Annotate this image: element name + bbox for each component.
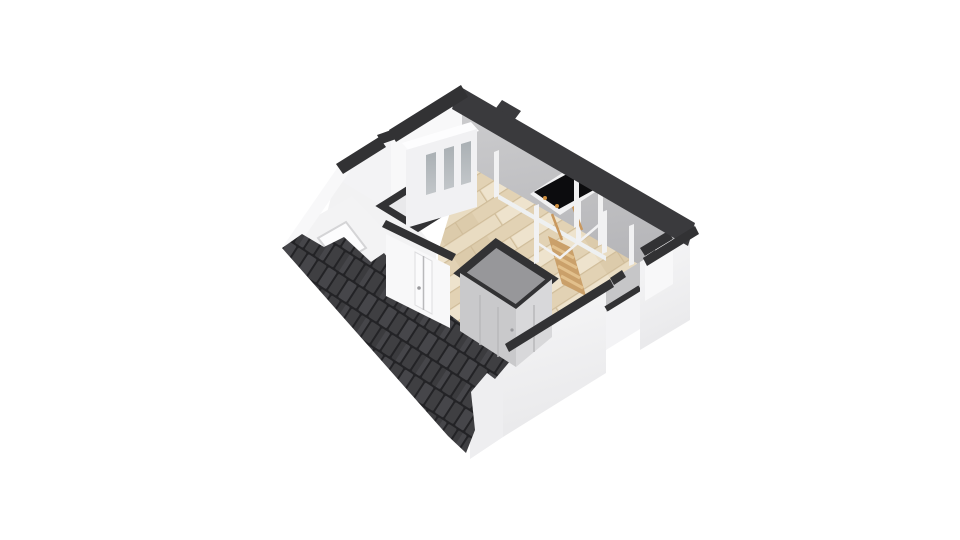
closet-handle [510,328,513,331]
roof-post-1 [494,150,499,198]
glass-pane-3 [461,141,471,185]
railing-post-1 [534,204,539,264]
floorplan-3d-render [0,0,960,540]
roof-post-4 [629,224,634,266]
glass-pane-1 [426,152,436,195]
hatch-hinge-2 [555,204,559,208]
hatch-hinge-1 [543,196,547,200]
door-handle [417,286,421,290]
glass-pane-2 [444,146,454,190]
floorplan-page [0,0,960,540]
